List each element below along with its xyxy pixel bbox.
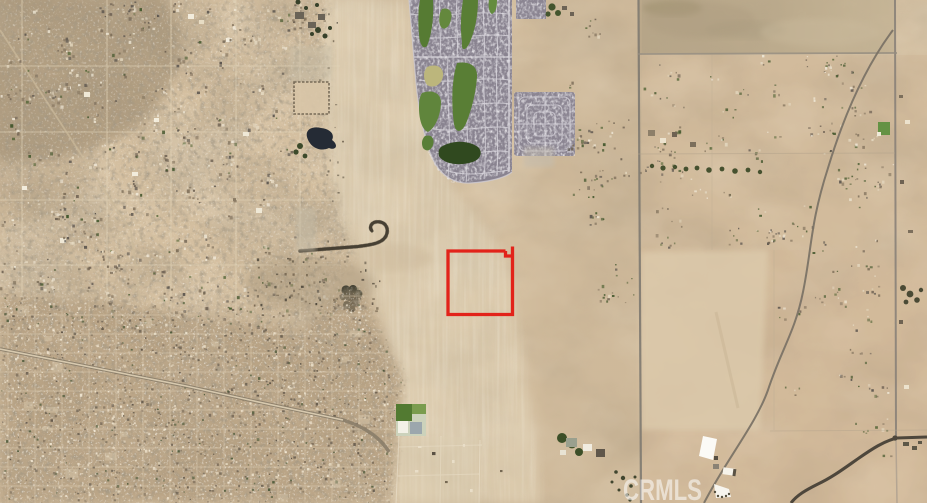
svg-text:CRMLS: CRMLS [623, 474, 702, 503]
